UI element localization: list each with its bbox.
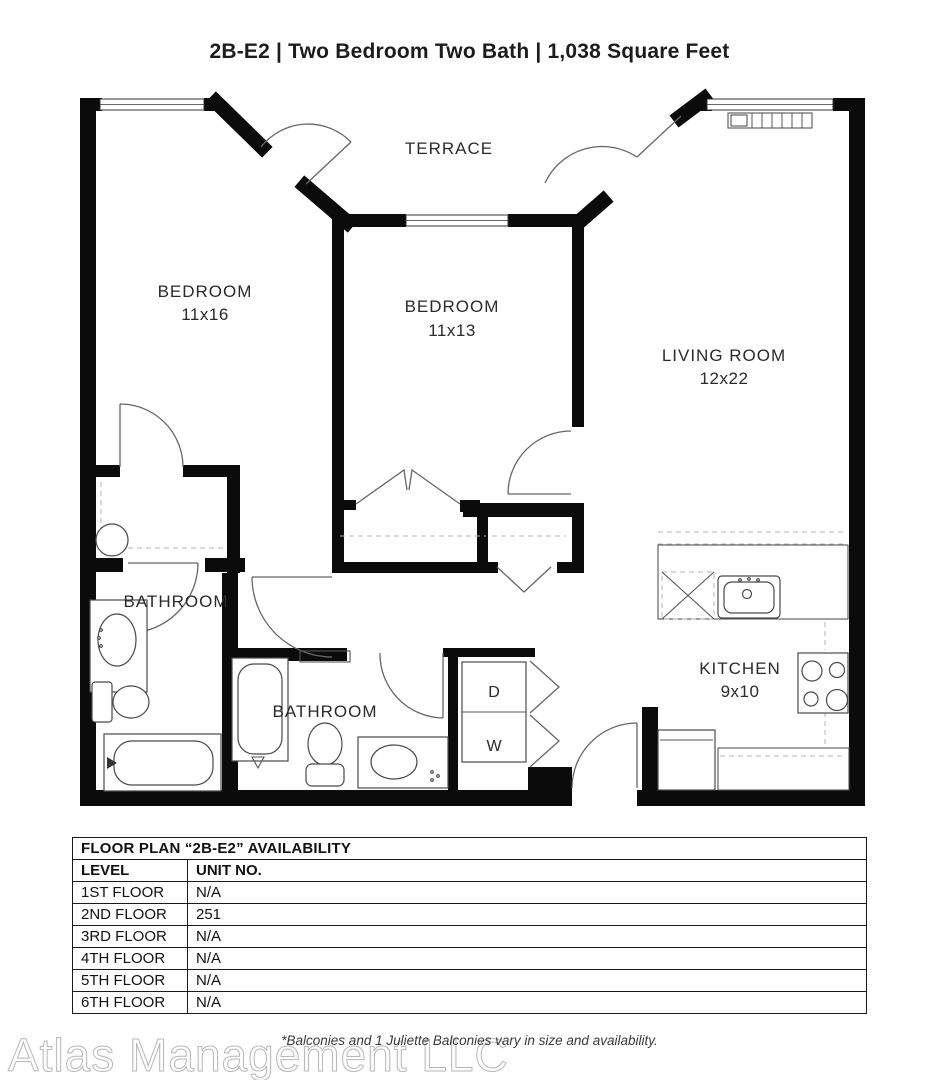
unit-cell: N/A xyxy=(188,926,867,948)
table-row: 2ND FLOOR 251 xyxy=(73,904,867,926)
sink-1 xyxy=(98,614,136,666)
level-cell: 1ST FLOOR xyxy=(73,882,188,904)
fridge xyxy=(658,730,715,790)
stove xyxy=(798,653,848,713)
column-header-level: LEVEL xyxy=(73,860,188,882)
level-cell: 3RD FLOOR xyxy=(73,926,188,948)
level-cell: 2ND FLOOR xyxy=(73,904,188,926)
toilet-2-tank xyxy=(306,764,344,786)
toilet-1-bowl xyxy=(113,686,149,718)
table-title: FLOOR PLAN “2B-E2” AVAILABILITY xyxy=(73,838,867,860)
heater-unit xyxy=(728,113,812,128)
toilet-2-bowl xyxy=(308,723,342,765)
bifold-closet-bedroom2 xyxy=(356,470,460,504)
door-terrace-left xyxy=(261,124,351,184)
room-label-kitchen: KITCHEN xyxy=(699,659,781,678)
window-bedroom-1 xyxy=(100,99,204,110)
sink-2 xyxy=(371,745,417,779)
table-title-row: FLOOR PLAN “2B-E2” AVAILABILITY xyxy=(73,838,867,860)
unit-cell: N/A xyxy=(188,948,867,970)
toilet-1-tank xyxy=(92,682,112,722)
door-bedroom-2 xyxy=(508,431,571,494)
windows xyxy=(100,99,833,226)
window-living-room xyxy=(707,99,833,110)
footnote: *Balconies and 1 Juliette Balconies vary… xyxy=(0,1033,939,1048)
table-header-row: LEVEL UNIT NO. xyxy=(73,860,867,882)
floor-plan-page: 2B-E2 | Two Bedroom Two Bath | 1,038 Squ… xyxy=(0,0,939,1080)
door-entry xyxy=(572,723,637,788)
door-bathroom-2 xyxy=(380,653,443,718)
floor-plan-drawing: D W xyxy=(0,0,939,830)
availability-table: FLOOR PLAN “2B-E2” AVAILABILITY LEVEL UN… xyxy=(72,837,867,1014)
level-cell: 6TH FLOOR xyxy=(73,992,188,1014)
room-label-bedroom-1: BEDROOM xyxy=(158,282,253,301)
room-dim-bedroom-2: 11x13 xyxy=(428,321,476,340)
level-cell: 4TH FLOOR xyxy=(73,948,188,970)
table-row: 3RD FLOOR N/A xyxy=(73,926,867,948)
table-row: 6TH FLOOR N/A xyxy=(73,992,867,1014)
door-terrace-right xyxy=(545,116,681,183)
room-label-living-room: LIVING ROOM xyxy=(662,346,786,365)
room-label-terrace: TERRACE xyxy=(405,139,493,158)
kitchen-counter-bottom xyxy=(718,748,849,790)
unit-cell: N/A xyxy=(188,992,867,1014)
table-row: 4TH FLOOR N/A xyxy=(73,948,867,970)
room-dim-bedroom-1: 11x16 xyxy=(181,305,229,324)
table-row: 5TH FLOOR N/A xyxy=(73,970,867,992)
kitchen-sink xyxy=(718,576,780,618)
table-row: 1ST FLOOR N/A xyxy=(73,882,867,904)
unit-cell: 251 xyxy=(188,904,867,926)
door-bedroom1-closet xyxy=(120,404,183,467)
room-label-bathroom-2: BATHROOM xyxy=(273,702,378,721)
room-label-bathroom-1: BATHROOM xyxy=(124,592,229,611)
laundry-stack: D W xyxy=(462,662,526,762)
bifold-closet-entry xyxy=(497,567,551,592)
level-cell: 5TH FLOOR xyxy=(73,970,188,992)
room-label-bedroom-2: BEDROOM xyxy=(405,297,500,316)
room-dim-kitchen: 9x10 xyxy=(721,682,760,701)
water-heater xyxy=(96,524,128,556)
room-dim-living-room: 12x22 xyxy=(700,369,749,388)
dishwasher xyxy=(662,572,714,619)
dryer-label: D xyxy=(488,684,500,701)
door-hallway xyxy=(252,577,332,657)
bifold-laundry xyxy=(530,661,559,767)
unit-cell: N/A xyxy=(188,882,867,904)
washer-label: W xyxy=(486,738,502,755)
unit-cell: N/A xyxy=(188,970,867,992)
column-header-unit-no: UNIT NO. xyxy=(188,860,867,882)
window-terrace xyxy=(406,215,508,226)
